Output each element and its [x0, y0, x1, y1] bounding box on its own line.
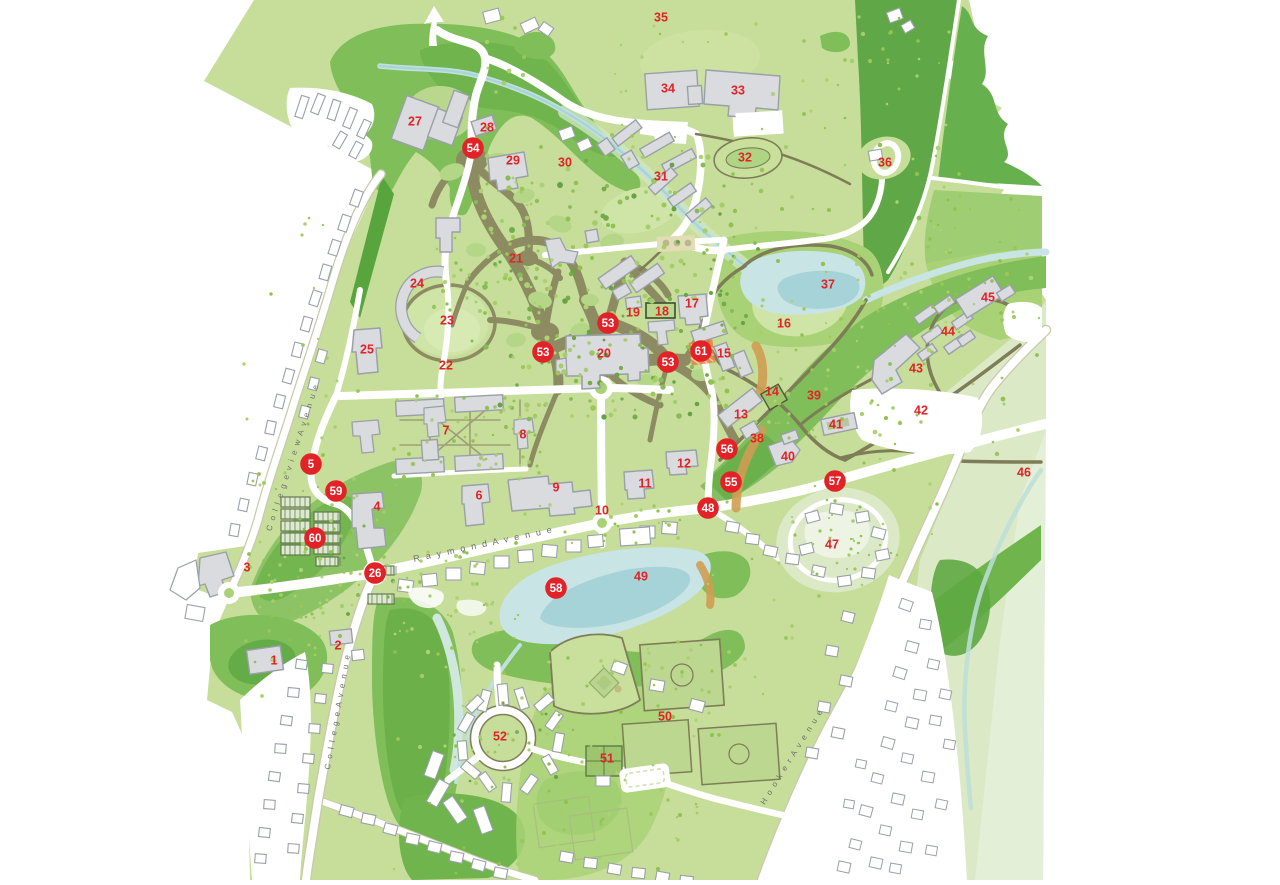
svg-text:9: 9: [553, 481, 560, 495]
svg-text:44: 44: [941, 325, 955, 339]
svg-text:10: 10: [595, 504, 609, 518]
svg-text:30: 30: [558, 156, 572, 170]
svg-text:47: 47: [825, 538, 839, 552]
svg-text:53: 53: [537, 347, 550, 359]
svg-text:20: 20: [597, 347, 611, 361]
svg-text:56: 56: [721, 444, 734, 456]
svg-text:21: 21: [509, 252, 523, 266]
svg-text:46: 46: [1017, 466, 1031, 480]
svg-text:28: 28: [480, 121, 494, 135]
svg-text:18: 18: [655, 305, 669, 319]
svg-text:55: 55: [725, 477, 738, 489]
svg-text:2: 2: [335, 639, 342, 653]
svg-text:42: 42: [914, 404, 928, 418]
svg-text:23: 23: [440, 314, 454, 328]
svg-text:32: 32: [738, 151, 752, 165]
svg-text:7: 7: [443, 424, 450, 438]
svg-text:3: 3: [244, 561, 251, 575]
svg-text:49: 49: [634, 570, 648, 584]
svg-text:29: 29: [506, 154, 520, 168]
svg-text:16: 16: [777, 317, 791, 331]
svg-text:17: 17: [685, 297, 699, 311]
svg-text:33: 33: [731, 84, 745, 98]
svg-text:22: 22: [439, 359, 453, 373]
svg-text:26: 26: [369, 568, 382, 580]
svg-text:5: 5: [308, 459, 315, 471]
svg-text:19: 19: [626, 306, 640, 320]
svg-text:27: 27: [408, 115, 422, 129]
svg-text:36: 36: [878, 156, 892, 170]
svg-text:35: 35: [654, 11, 668, 25]
svg-text:12: 12: [677, 457, 691, 471]
svg-text:50: 50: [658, 710, 672, 724]
svg-text:37: 37: [821, 278, 835, 292]
svg-text:6: 6: [476, 489, 483, 503]
svg-text:40: 40: [781, 450, 795, 464]
svg-text:25: 25: [360, 343, 374, 357]
svg-text:39: 39: [807, 389, 821, 403]
svg-text:48: 48: [702, 503, 715, 515]
svg-text:58: 58: [550, 583, 563, 595]
svg-text:38: 38: [750, 432, 764, 446]
svg-text:43: 43: [909, 362, 923, 376]
svg-text:45: 45: [981, 291, 995, 305]
svg-text:4: 4: [374, 500, 381, 514]
svg-text:13: 13: [734, 408, 748, 422]
svg-text:11: 11: [638, 477, 651, 491]
svg-text:59: 59: [330, 486, 343, 498]
svg-text:8: 8: [520, 428, 527, 442]
svg-text:60: 60: [309, 533, 322, 545]
svg-text:41: 41: [829, 418, 843, 432]
svg-text:53: 53: [602, 318, 615, 330]
svg-text:52: 52: [493, 730, 507, 744]
svg-text:31: 31: [654, 170, 668, 184]
svg-text:54: 54: [467, 143, 480, 155]
svg-text:57: 57: [829, 476, 842, 488]
svg-text:24: 24: [410, 277, 424, 291]
svg-text:1: 1: [271, 654, 278, 668]
svg-text:61: 61: [695, 346, 708, 358]
svg-text:34: 34: [661, 82, 675, 96]
svg-text:53: 53: [662, 357, 675, 369]
svg-text:51: 51: [600, 752, 614, 766]
svg-text:15: 15: [717, 347, 731, 361]
svg-text:14: 14: [765, 385, 779, 399]
